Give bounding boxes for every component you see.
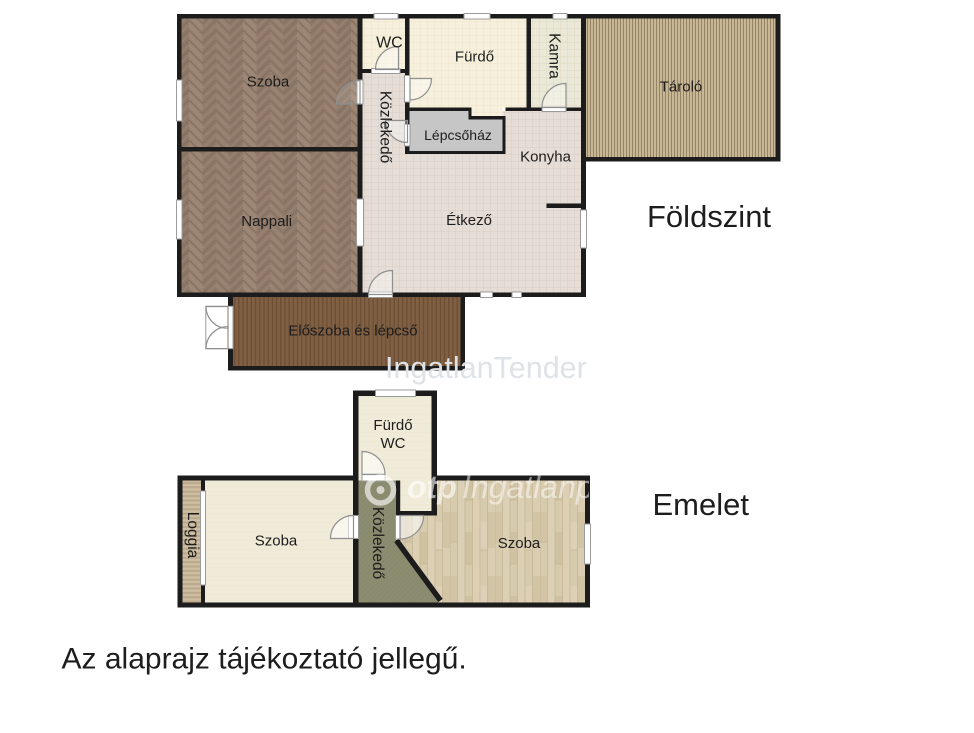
svg-text:Az alaprajz tájékoztató jelleg: Az alaprajz tájékoztató jellegű. — [62, 643, 467, 676]
svg-text:Szoba: Szoba — [247, 74, 290, 91]
svg-text:Közlekedő: Közlekedő — [369, 507, 386, 579]
svg-text:Nappali: Nappali — [241, 213, 292, 230]
svg-text:Étkező: Étkező — [446, 212, 492, 229]
svg-text:WC: WC — [376, 35, 403, 52]
svg-text:Loggia: Loggia — [184, 512, 201, 559]
svg-text:Ingatlanpont: Ingatlanpont — [462, 469, 639, 505]
svg-text:Fürdő: Fürdő — [373, 417, 412, 434]
svg-text:Tároló: Tároló — [660, 79, 703, 96]
svg-text:WC: WC — [381, 435, 406, 452]
svg-text:Szoba: Szoba — [498, 535, 541, 552]
svg-text:Kamra: Kamra — [546, 33, 563, 79]
svg-text:Lépcsőház: Lépcsőház — [424, 127, 492, 143]
svg-text:Szoba: Szoba — [255, 532, 298, 549]
svg-text:Földszint: Földszint — [647, 199, 771, 234]
svg-text:IngatlanTender: IngatlanTender — [385, 351, 587, 385]
svg-text:Fürdő: Fürdő — [455, 49, 494, 66]
svg-text:Konyha: Konyha — [520, 149, 572, 166]
svg-text:Emelet: Emelet — [653, 487, 750, 522]
svg-text:Előszoba és lépcső: Előszoba és lépcső — [288, 323, 417, 340]
svg-text:Közlekedő: Közlekedő — [377, 91, 394, 163]
svg-text:otp: otp — [407, 469, 457, 505]
